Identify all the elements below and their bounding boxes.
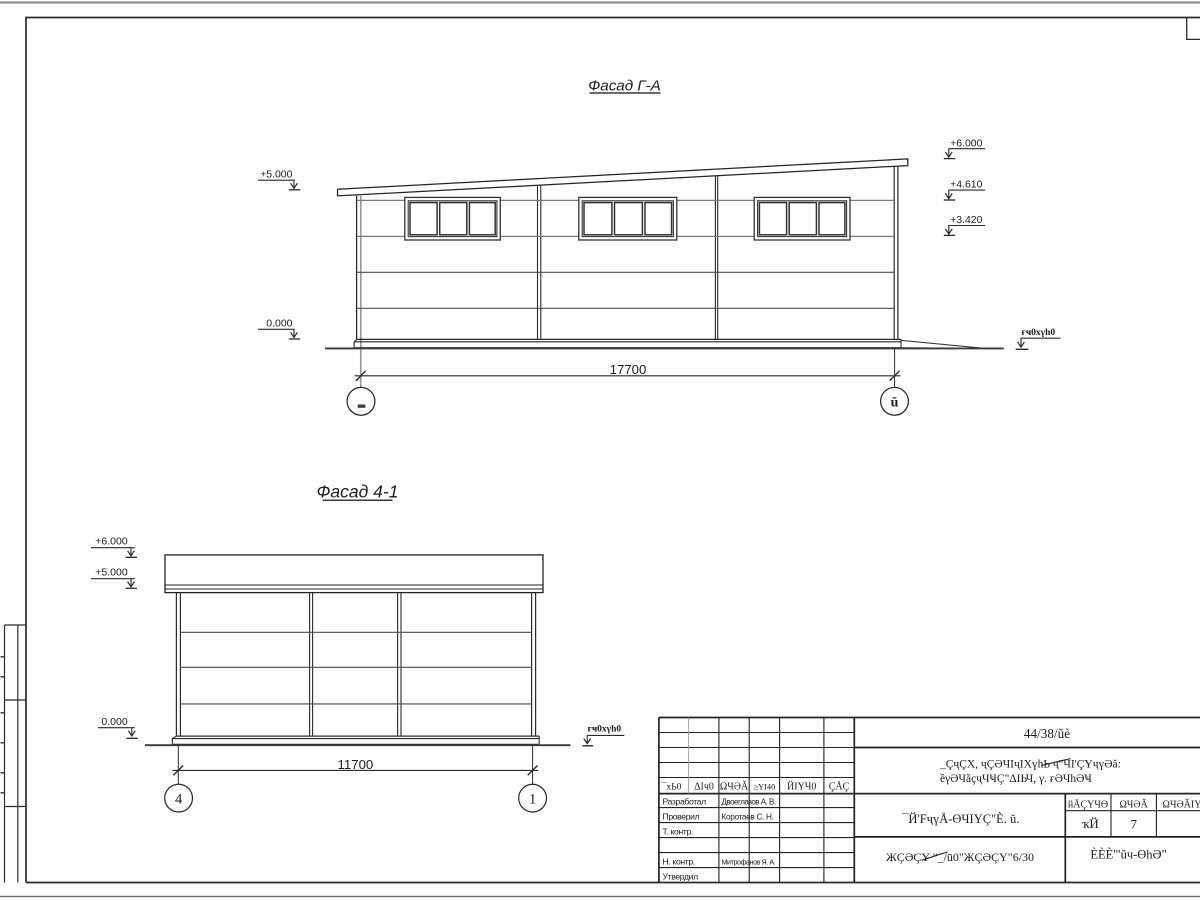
svg-text:44/38/ŭè: 44/38/ŭè [1024,726,1070,741]
svg-text:11700: 11700 [338,757,374,772]
svg-text:ғҹ0хγh0: ғҹ0хγh0 [588,725,622,735]
svg-text:ÇÅÇ: ÇÅÇ [829,781,850,793]
svg-text:Митрофанов Я. А.: Митрофанов Я. А. [722,858,776,867]
svg-text:Фасад 4-1: Фасад 4-1 [317,481,399,501]
svg-text:0.000: 0.000 [266,318,292,330]
svg-text:¯хЬ0: ¯хЬ0 [661,782,682,793]
svg-text:ΔΙч0: ΔΙч0 [694,782,714,793]
svg-text:Фасад Г-А: Фасад Г-А [588,78,661,95]
svg-text:Утвердил: Утвердил [663,872,699,882]
svg-text:ÈÈÈ'"ŭч-ϴhӘ": ÈÈÈ'"ŭч-ϴhӘ" [1090,848,1166,862]
svg-text:ЙΙΥЧ0: ЙΙΥЧ0 [787,781,816,793]
svg-text:ΩЧӘĂΙΥ: ΩЧӘĂΙΥ [1163,799,1200,811]
svg-text:7: 7 [1130,816,1137,831]
svg-text:йÅÇΥЧϴ: йÅÇΥЧϴ [1068,799,1108,811]
svg-text:ŭ: ŭ [891,396,899,411]
svg-text:Проверил: Проверил [663,812,700,822]
svg-text:¯Й'FҷүÅ-ϴЧΙΥÇ"È. ŭ.: ¯Й'FҷүÅ-ϴЧΙΥÇ"È. ŭ. [901,812,1019,826]
svg-text:ҡЙ: ҡЙ [1082,816,1099,831]
svg-text:≥ΥΙ40: ≥ΥΙ40 [753,783,775,792]
svg-text:4: 4 [175,791,183,807]
svg-text:ΩЧӘĂ: ΩЧӘĂ [1120,799,1149,811]
svg-text:ғҹ0хγh0: ғҹ0хγh0 [1022,328,1056,338]
svg-text:+5.000: +5.000 [95,567,128,579]
svg-text:+5.000: +5.000 [260,168,293,180]
svg-text:1: 1 [529,791,536,807]
svg-text:Коротаев С. Н.: Коротаев С. Н. [722,813,774,822]
svg-text:Разработал: Разработал [663,797,707,807]
svg-text:+6.000: +6.000 [95,536,128,548]
svg-text:ềγӘЧăçҷЧҸÇ"ΔΙЬЧ, γ. ғӘЧhӘҸ: ềγӘЧăçҷЧҸÇ"ΔΙЬЧ, γ. ғӘЧhӘҸ [939,772,1092,785]
svg-text:Двоеглазов А. В.: Двоеглазов А. В. [722,798,776,807]
svg-text:0.000: 0.000 [101,716,127,728]
svg-text:+4.610: +4.610 [950,179,983,191]
svg-text:+6.000: +6.000 [950,137,983,149]
svg-text:ΩЧӘĂ: ΩЧӘĂ [720,781,749,793]
svg-text:+3.420: +3.420 [950,214,983,226]
svg-text:Н. контр.: Н. контр. [663,857,695,867]
svg-text:ЖÇӘÇΥ "_/ū0"ЖÇӘÇΥ"6/30: ЖÇӘÇΥ "_/ū0"ЖÇӘÇΥ"6/30 [886,850,1034,864]
svg-text:_ÇҷÇХ, ҷÇӘЧΙҷΙХүhЬ ҷ"ЧΙ'ÇҮҷүӘă: _ÇҷÇХ, ҷÇӘЧΙҷΙХүhЬ ҷ"ЧΙ'ÇҮҷүӘă: [939,759,1121,771]
svg-text:17700: 17700 [610,362,647,377]
svg-text:Т. контр.: Т. контр. [663,827,693,837]
